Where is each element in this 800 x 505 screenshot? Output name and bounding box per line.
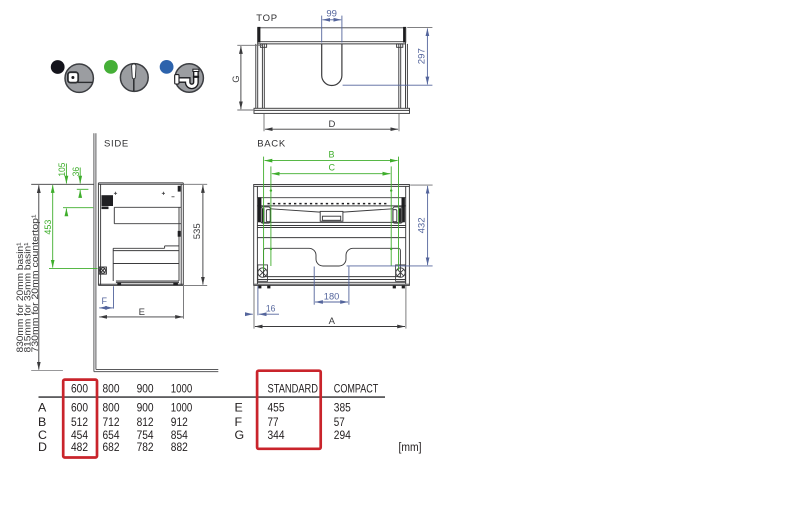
svg-text:D: D (329, 119, 336, 130)
svg-text:BACK: BACK (257, 139, 286, 150)
svg-text:TOP: TOP (256, 13, 277, 24)
svg-text:455: 455 (268, 401, 285, 415)
svg-text:77: 77 (268, 415, 279, 429)
svg-text:712: 712 (103, 415, 120, 429)
svg-text:[mm]: [mm] (399, 442, 422, 454)
svg-text:730mm for 20mm countertop¹: 730mm for 20mm countertop¹ (30, 215, 40, 353)
svg-text:F: F (235, 415, 243, 429)
svg-text:A: A (329, 316, 336, 327)
svg-text:B: B (329, 150, 335, 160)
svg-text:482: 482 (71, 440, 88, 454)
svg-text:1000: 1000 (171, 401, 193, 415)
svg-text:F: F (102, 296, 108, 306)
svg-text:900: 900 (137, 381, 154, 395)
svg-text:453: 453 (43, 220, 53, 235)
svg-text:E: E (139, 307, 145, 318)
svg-text:105: 105 (57, 163, 67, 177)
svg-text:782: 782 (137, 440, 154, 454)
svg-text:812: 812 (137, 415, 154, 429)
svg-text:D: D (38, 440, 47, 454)
svg-text:900: 900 (137, 401, 154, 415)
svg-text:57: 57 (334, 415, 345, 429)
svg-text:180: 180 (324, 291, 340, 301)
svg-text:800: 800 (103, 401, 120, 415)
svg-text:A: A (38, 401, 47, 415)
svg-text:344: 344 (268, 428, 285, 442)
svg-text:800: 800 (103, 381, 120, 395)
svg-text:16: 16 (266, 304, 276, 314)
svg-text:C: C (329, 163, 336, 173)
svg-text:294: 294 (334, 428, 351, 442)
svg-text:COMPACT: COMPACT (334, 381, 379, 395)
svg-text:600: 600 (71, 401, 88, 415)
svg-text:512: 512 (71, 415, 88, 429)
svg-text:882: 882 (171, 440, 188, 454)
svg-text:B: B (38, 415, 46, 429)
svg-text:SIDE: SIDE (104, 139, 129, 150)
svg-text:297: 297 (416, 48, 426, 64)
svg-text:432: 432 (417, 217, 427, 233)
svg-text:682: 682 (103, 440, 120, 454)
svg-text:535: 535 (192, 223, 203, 239)
svg-text:1000: 1000 (171, 381, 193, 395)
svg-text:99: 99 (326, 9, 337, 19)
svg-text:36: 36 (71, 167, 81, 177)
svg-text:G: G (235, 428, 245, 442)
svg-text:E: E (235, 401, 243, 415)
svg-text:STANDARD: STANDARD (268, 381, 319, 395)
svg-text:385: 385 (334, 401, 351, 415)
svg-text:G: G (231, 75, 242, 82)
svg-text:600: 600 (71, 381, 88, 395)
svg-text:912: 912 (171, 415, 188, 429)
